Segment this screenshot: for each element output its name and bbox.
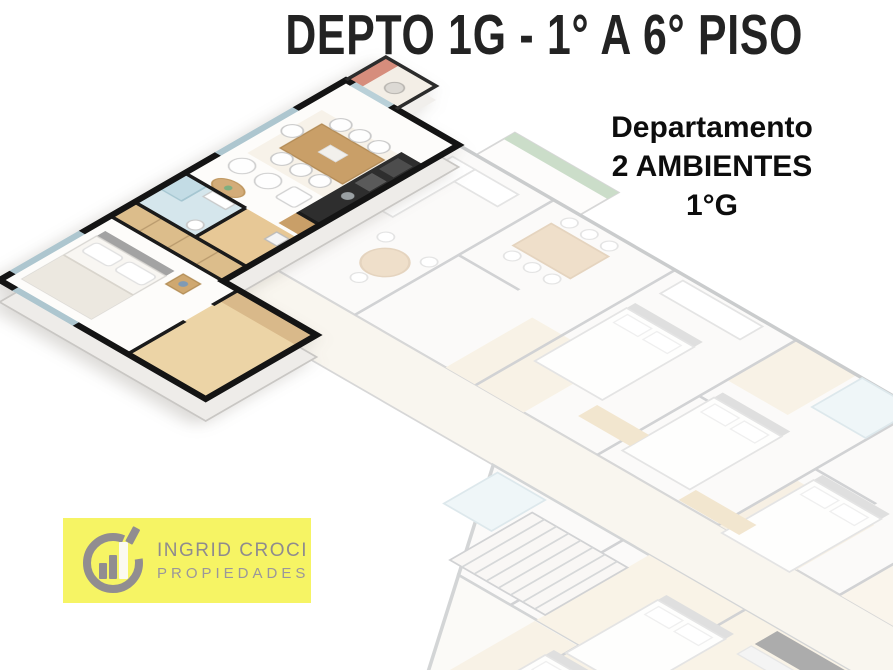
unit-info: Departamento 2 AMBIENTES 1°G xyxy=(562,108,862,225)
logo-text: INGRID CROCI PROPIEDADES xyxy=(157,540,309,582)
agency-logo: INGRID CROCI PROPIEDADES xyxy=(63,518,311,603)
page-title-text: DEPTO 1G - 1° A 6° PISO xyxy=(286,2,804,68)
unit-info-line-2: 2 AMBIENTES xyxy=(562,147,862,186)
page-title: DEPTO 1G - 1° A 6° PISO xyxy=(0,2,893,68)
logo-name: INGRID CROCI xyxy=(157,540,309,562)
page: DEPTO 1G - 1° A 6° PISO Departamento 2 A… xyxy=(0,0,893,670)
logo-icon xyxy=(83,525,147,597)
unit-info-line-1: Departamento xyxy=(562,108,862,147)
unit-info-line-3: 1°G xyxy=(562,186,862,225)
logo-tagline: PROPIEDADES xyxy=(157,565,309,582)
